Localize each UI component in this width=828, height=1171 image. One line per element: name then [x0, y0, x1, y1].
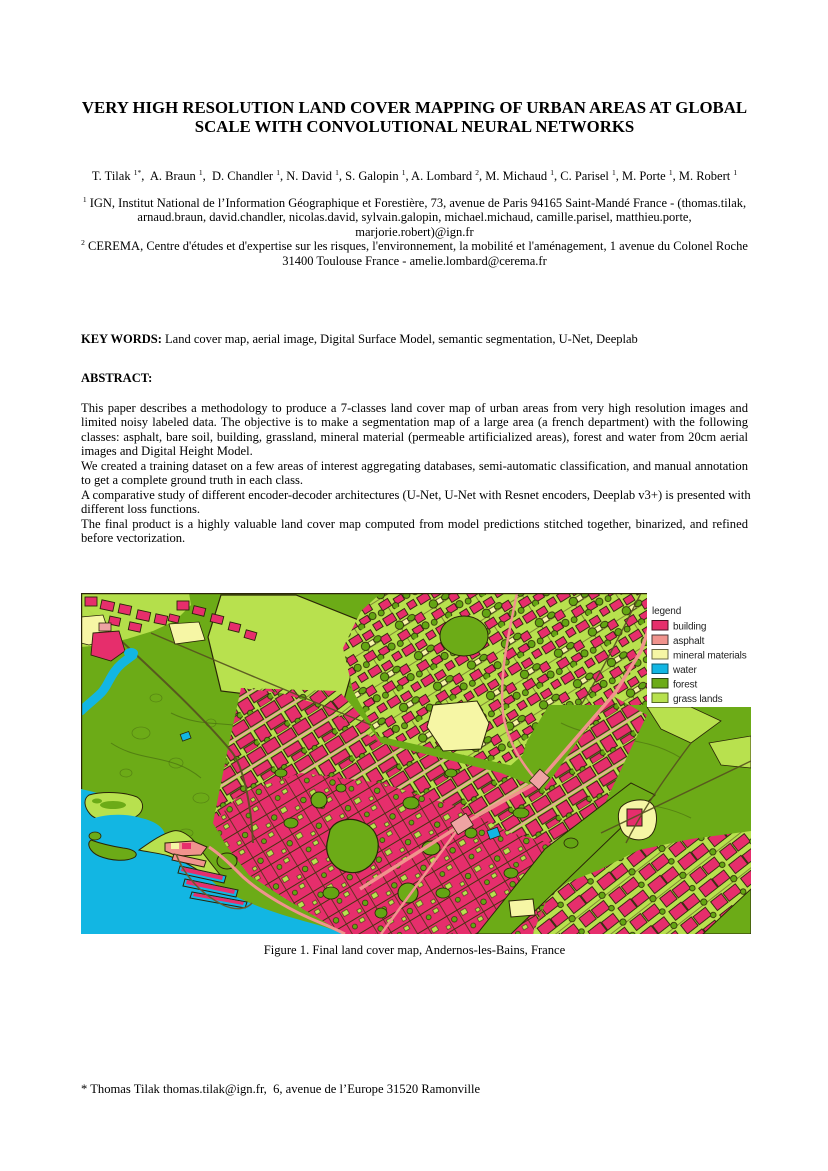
svg-text:asphalt: asphalt [673, 636, 705, 647]
svg-text:building: building [673, 622, 706, 633]
svg-text:legend: legend [652, 606, 681, 617]
svg-text:mineral materials: mineral materials [673, 651, 747, 662]
svg-text:water: water [672, 665, 698, 676]
svg-text:forest: forest [673, 680, 697, 691]
svg-text:grass lands: grass lands [673, 694, 723, 705]
